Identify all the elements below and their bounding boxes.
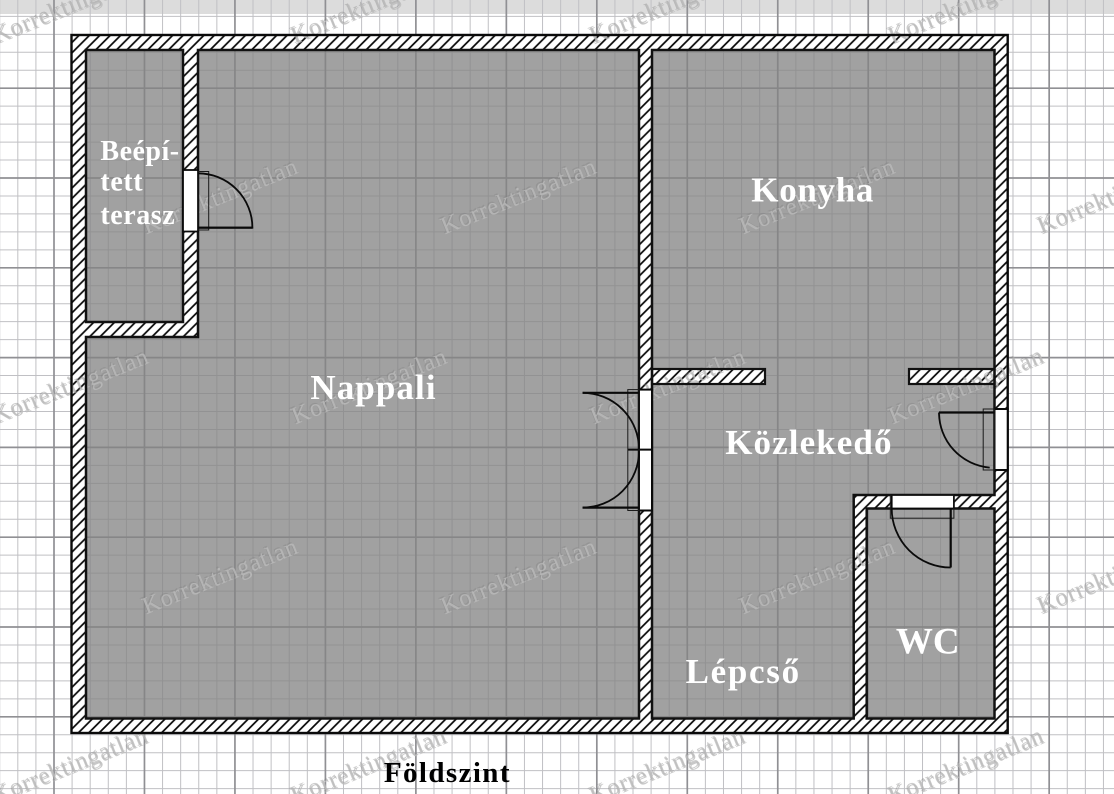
- svg-text:Nappali: Nappali: [310, 368, 436, 407]
- svg-text:Közlekedő: Közlekedő: [725, 423, 892, 462]
- svg-text:Lépcső: Lépcső: [686, 652, 801, 691]
- svg-text:tett: tett: [100, 167, 143, 198]
- svg-text:Konyha: Konyha: [751, 171, 874, 210]
- svg-text:terasz: terasz: [100, 200, 175, 231]
- svg-text:Beépí-: Beépí-: [100, 136, 179, 167]
- svg-text:Földszint: Földszint: [384, 757, 511, 789]
- svg-text:WC: WC: [896, 621, 960, 662]
